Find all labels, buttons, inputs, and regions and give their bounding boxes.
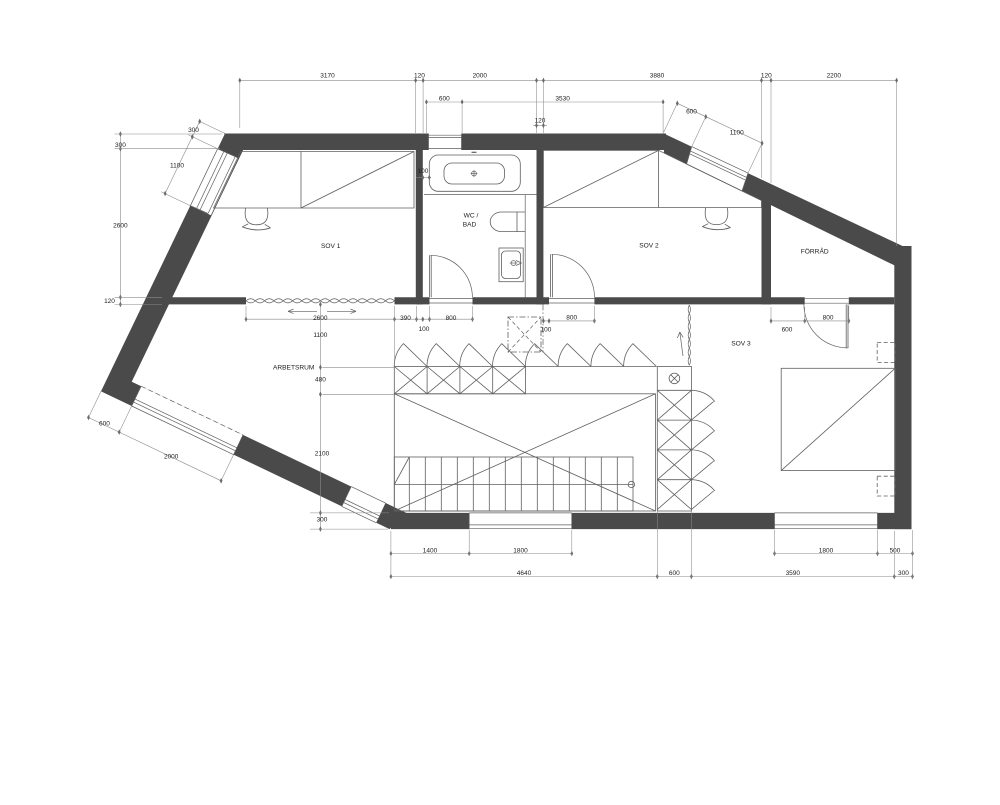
svg-text:600: 600 [439,95,450,102]
svg-text:600: 600 [686,109,697,116]
svg-text:120: 120 [414,73,425,80]
svg-text:2200: 2200 [827,73,842,80]
svg-text:WC /: WC / [464,213,479,220]
svg-text:100: 100 [418,168,429,175]
svg-text:3880: 3880 [650,73,665,80]
svg-text:800: 800 [446,315,457,322]
svg-text:3170: 3170 [320,73,335,80]
svg-text:3530: 3530 [555,95,570,102]
svg-text:FÖRRÅD: FÖRRÅD [801,247,829,256]
svg-text:2100: 2100 [315,450,330,457]
svg-text:1800: 1800 [819,547,834,554]
svg-text:100: 100 [419,326,430,333]
svg-text:BAD: BAD [463,221,477,228]
svg-text:2600: 2600 [113,223,128,230]
svg-text:SOV 1: SOV 1 [321,243,341,250]
svg-text:1100: 1100 [170,162,184,169]
svg-text:3590: 3590 [786,570,801,577]
svg-text:300: 300 [188,127,199,134]
svg-text:1100: 1100 [313,332,327,339]
svg-text:SOV 3: SOV 3 [731,341,751,348]
svg-text:SOV 2: SOV 2 [639,243,659,250]
svg-text:1400: 1400 [423,547,438,554]
svg-text:4640: 4640 [517,570,532,577]
svg-text:600: 600 [782,327,793,334]
svg-text:480: 480 [315,376,326,383]
svg-text:1800: 1800 [513,547,528,554]
svg-text:300: 300 [317,516,328,523]
svg-text:800: 800 [566,315,577,322]
svg-text:2000: 2000 [473,73,488,80]
svg-text:120: 120 [761,73,772,80]
svg-text:800: 800 [823,315,834,322]
svg-text:2000: 2000 [164,453,179,460]
svg-text:600: 600 [669,570,680,577]
svg-text:390: 390 [400,315,411,322]
svg-text:ARBETSRUM: ARBETSRUM [273,365,314,372]
svg-text:300: 300 [898,570,909,577]
svg-text:100: 100 [541,327,552,334]
svg-text:300: 300 [115,142,126,149]
svg-text:600: 600 [99,421,110,428]
svg-text:500: 500 [890,547,901,554]
svg-text:1100: 1100 [730,130,744,137]
svg-text:120: 120 [104,298,115,305]
